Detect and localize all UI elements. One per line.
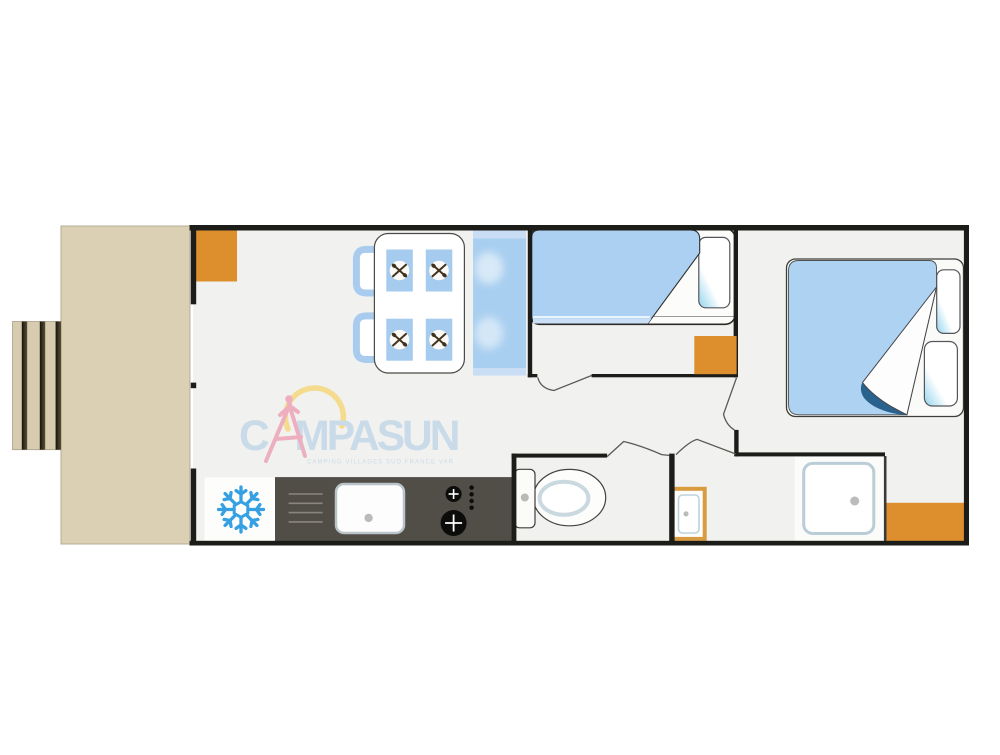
svg-text:CAMPASUN: CAMPASUN [239, 413, 458, 460]
svg-text:CAMPING VILLAGES SUD FRANCE VA: CAMPING VILLAGES SUD FRANCE VAR [307, 460, 454, 466]
